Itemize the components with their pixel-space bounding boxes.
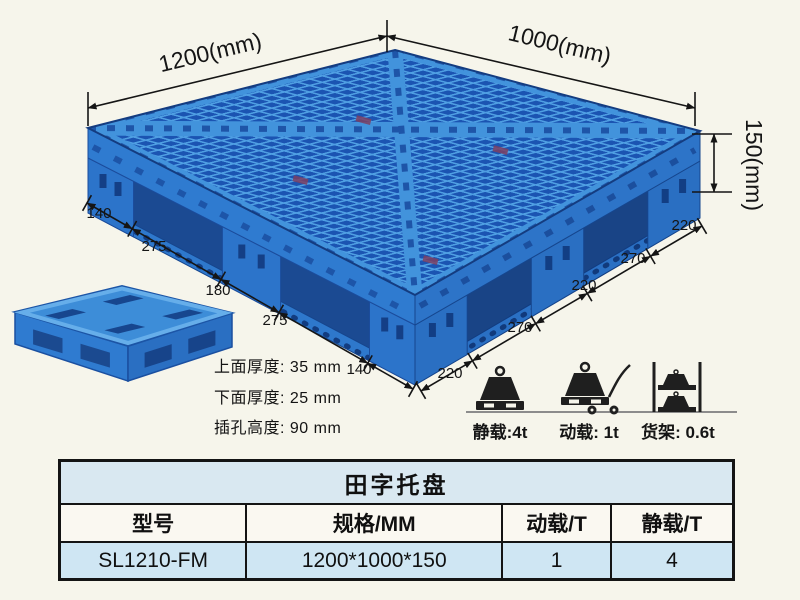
cell-dynamic-load: 1 [502,542,611,580]
dynamic-load-icon [561,363,630,415]
cell-model: SL1210-FM [60,542,247,580]
table-header-row: 型号 规格/MM 动载/T 静载/T [60,504,734,542]
static-load-label: 静载:4t [473,422,528,442]
dynamic-load-label: 动载: 1t [559,422,619,442]
rack-load-icon [654,362,700,412]
small-pallet-illustration [15,286,232,381]
spec-table: 田字托盘 型号 规格/MM 动载/T 静载/T SL1210-FM 1200*1… [58,459,735,581]
product-spec-sheet: 1200(mm) 1000(mm) 150(mm) 140 275 180 27… [0,0,800,600]
cell-static-load: 4 [611,542,734,580]
header-dynamic-load: 动载/T [502,504,611,542]
dim-tick-left-1: 275 [141,238,166,255]
header-spec: 规格/MM [246,504,502,542]
dim-label-150: 150(mm) [741,119,767,211]
table-data-row: SL1210-FM 1200*1000*150 1 4 [60,542,734,580]
dim-tick-right-4: 220 [671,217,696,234]
static-load-icon [476,367,524,410]
header-static-load: 静载/T [611,504,734,542]
note-fork-height: 插孔高度: 90 mm [214,414,444,438]
dim-label-1000: 1000(mm) [506,19,614,69]
dim-tick-left-3: 275 [262,312,287,329]
header-model: 型号 [60,504,247,542]
dim-tick-left-0: 140 [86,205,111,222]
note-top-thickness: 上面厚度: 35 mm [214,353,444,377]
dim-tick-right-2: 220 [571,277,596,294]
note-bottom-thickness: 下面厚度: 25 mm [214,384,444,408]
dim-tick-right-1: 270 [507,319,532,336]
table-title: 田字托盘 [60,461,734,505]
dim-tick-right-3: 270 [620,250,645,267]
dim-tick-left-2: 180 [205,282,230,299]
rack-load-label: 货架: 0.6t [641,422,715,442]
cell-spec: 1200*1000*150 [246,542,502,580]
load-capacity-icons: 静载:4t 动载: 1t 货架: 0.6t [466,362,737,442]
